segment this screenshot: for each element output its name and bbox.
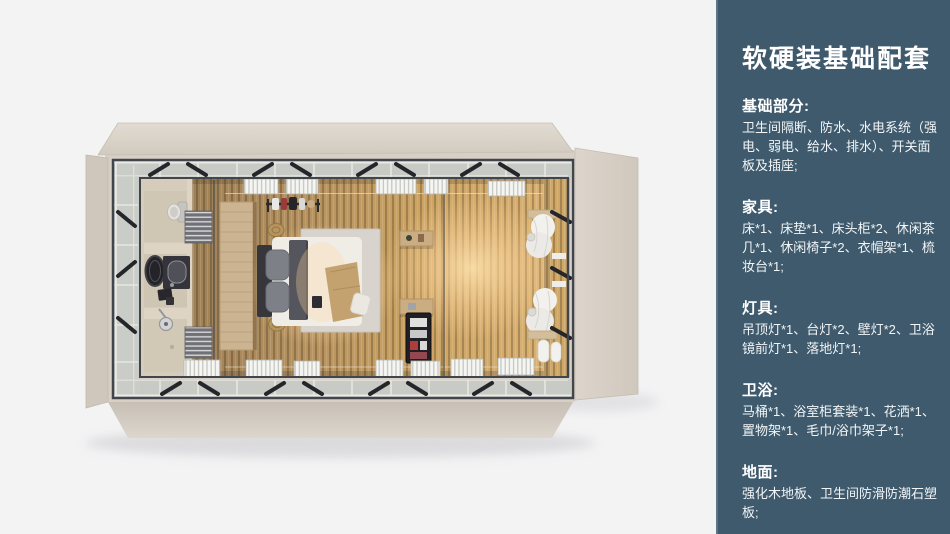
- section-body: 马桶*1、浴室柜套装*1、花洒*1、置物架*1、毛巾/浴巾架子*1;: [742, 403, 937, 441]
- section-label: 家具:: [742, 196, 937, 217]
- section-bathroom: 卫浴: 马桶*1、浴室柜套装*1、花洒*1、置物架*1、毛巾/浴巾架子*1;: [742, 379, 937, 441]
- towel-roll: [538, 340, 549, 362]
- double-bed: [257, 224, 380, 333]
- sink: [168, 261, 186, 283]
- section-label: 卫浴:: [742, 379, 937, 400]
- section-label: 基础部分:: [742, 95, 937, 116]
- section-body: 卫生间隔断、防水、水电系统（强电、弱电、给水、排水）、开关面板及插座;: [742, 119, 937, 176]
- top-flap: [98, 123, 573, 155]
- info-sidebar: 软硬装基础配套 基础部分: 卫生间隔断、防水、水电系统（强电、弱电、给水、排水）…: [716, 0, 950, 534]
- right-flap: [575, 148, 638, 400]
- section-flooring: 地面: 强化木地板、卫生间防滑防潮石塑板;: [742, 461, 937, 523]
- left-flap: [86, 155, 108, 408]
- bed-tray: [312, 296, 322, 308]
- pillow: [266, 282, 289, 312]
- wall-shelf: [528, 331, 557, 339]
- section-body: 床*1、床垫*1、床头柜*2、休闲茶几*1、休闲椅子*2、衣帽架*1、梳妆台*1…: [742, 220, 937, 277]
- louver-vent: [185, 327, 212, 358]
- section-furniture: 家具: 床*1、床垫*1、床头柜*2、休闲茶几*1、休闲椅子*2、衣帽架*1、梳…: [742, 196, 937, 277]
- minibar: [406, 313, 431, 363]
- bottom-flap: [108, 402, 573, 438]
- section-label: 灯具:: [742, 297, 937, 318]
- section-label: 地面:: [742, 461, 937, 482]
- section-body: 强化木地板、卫生间防滑防潮石塑板;: [742, 485, 937, 523]
- pillow: [266, 250, 289, 280]
- curtain-tie: [527, 233, 535, 241]
- section-lighting: 灯具: 吊顶灯*1、台灯*2、壁灯*2、卫浴镜前灯*1、落地灯*1;: [742, 297, 937, 359]
- section-body: 吊顶灯*1、台灯*2、壁灯*2、卫浴镜前灯*1、落地灯*1;: [742, 321, 937, 359]
- pouf: [268, 224, 284, 237]
- floorplan-render: [0, 0, 716, 534]
- wardrobe-panel: [220, 202, 257, 350]
- towel-roll: [551, 342, 561, 362]
- section-basics: 基础部分: 卫生间隔断、防水、水电系统（强电、弱电、给水、排水）、开关面板及插座…: [742, 95, 937, 176]
- louver-vent: [185, 211, 212, 243]
- room-top-view-svg: [0, 0, 716, 534]
- toilet: [168, 202, 188, 222]
- sidebar-title: 软硬装基础配套: [742, 44, 937, 75]
- partition-wall: [144, 243, 188, 254]
- curtain-tie: [528, 308, 536, 316]
- slide: 软硬装基础配套 基础部分: 卫生间隔断、防水、水电系统（强电、弱电、给水、排水）…: [0, 0, 950, 534]
